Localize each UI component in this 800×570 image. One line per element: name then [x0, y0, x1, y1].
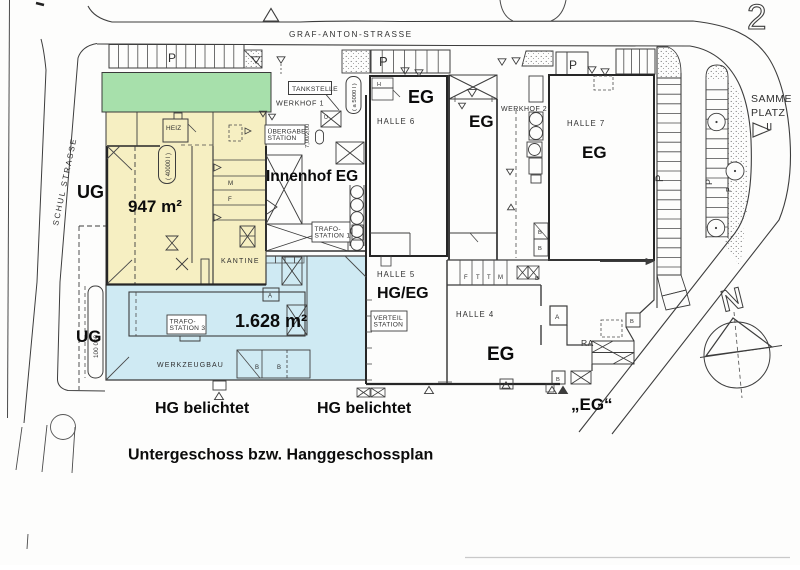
svg-text:M: M: [498, 275, 503, 281]
svg-text:T: T: [476, 275, 480, 281]
svg-text:947 m²: 947 m²: [128, 197, 182, 216]
svg-text:Ü: Ü: [324, 114, 328, 121]
svg-text:P: P: [168, 51, 176, 65]
svg-text:WERKHOF 1: WERKHOF 1: [276, 99, 324, 108]
svg-text:P: P: [379, 54, 388, 69]
svg-text:Untergeschoss bzw. Hanggeschos: Untergeschoss bzw. Hanggeschossplan: [128, 447, 433, 464]
svg-text:P: P: [704, 179, 714, 185]
svg-text:B: B: [538, 246, 542, 252]
svg-text:7,00/2,00: 7,00/2,00: [305, 124, 311, 148]
svg-text:B: B: [556, 377, 560, 383]
svg-text:TANKSTELLE: TANKSTELLE: [292, 86, 338, 93]
svg-text:WERKZEUGBAU: WERKZEUGBAU: [157, 362, 224, 369]
svg-text:B: B: [535, 276, 539, 282]
svg-text:T: T: [487, 275, 491, 281]
svg-text:„EG“: „EG“: [571, 395, 613, 414]
svg-text:1.628 m²: 1.628 m²: [235, 311, 307, 331]
svg-text:HALLE 5: HALLE 5: [377, 270, 415, 279]
svg-text:STATION 3: STATION 3: [170, 325, 206, 332]
svg-text:EG: EG: [487, 344, 514, 365]
svg-text:EG: EG: [582, 143, 607, 162]
svg-text:HG belichtet: HG belichtet: [317, 400, 412, 417]
svg-text:Innenhof EG: Innenhof EG: [266, 168, 358, 185]
svg-text:HEIZ: HEIZ: [166, 125, 181, 132]
svg-text:KANTINE: KANTINE: [221, 258, 260, 265]
svg-text:SAMME: SAMME: [751, 93, 792, 105]
svg-text:F: F: [464, 275, 468, 281]
svg-text:HALLE 6: HALLE 6: [377, 117, 415, 126]
svg-text:GRAF-ANTON-STRASSE: GRAF-ANTON-STRASSE: [289, 30, 413, 39]
svg-text:H: H: [377, 82, 381, 88]
svg-text:A: A: [268, 294, 272, 300]
svg-text:HALLE 7: HALLE 7: [567, 119, 605, 128]
svg-text:B: B: [255, 365, 259, 371]
svg-text:EG: EG: [469, 112, 494, 131]
svg-text:( a 5000 l ): ( a 5000 l ): [352, 83, 358, 111]
svg-text:P: P: [654, 175, 666, 182]
svg-text:( 40000 l ): ( 40000 l ): [166, 153, 172, 180]
svg-text:F: F: [228, 196, 232, 203]
svg-text:EG: EG: [408, 87, 434, 107]
svg-text:M: M: [228, 180, 233, 187]
svg-text:UG: UG: [76, 327, 102, 346]
svg-text:2: 2: [747, 0, 766, 37]
svg-text:HALLE 4: HALLE 4: [456, 310, 494, 319]
svg-text:P: P: [726, 187, 733, 192]
svg-text:HG/EG: HG/EG: [377, 285, 429, 302]
svg-text:STATION: STATION: [268, 135, 297, 142]
svg-text:STATION 1: STATION 1: [315, 233, 351, 240]
svg-text:UG: UG: [77, 182, 104, 202]
svg-text:A: A: [555, 314, 560, 321]
svg-text:PLATZ: PLATZ: [751, 107, 785, 119]
svg-text:B: B: [630, 319, 634, 325]
svg-text:HG belichtet: HG belichtet: [155, 400, 250, 417]
svg-text:B: B: [538, 230, 542, 236]
svg-text:P: P: [569, 58, 577, 72]
svg-text:B: B: [277, 365, 281, 371]
svg-text:STATION: STATION: [374, 322, 404, 329]
